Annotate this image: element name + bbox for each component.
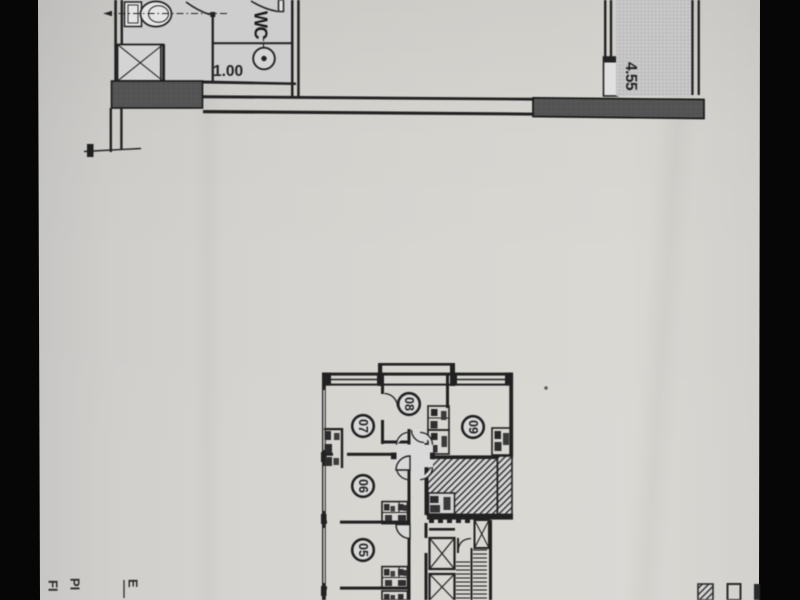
svg-text:E: E (126, 579, 141, 588)
svg-text:08: 08 (402, 397, 416, 411)
svg-text:09: 09 (466, 420, 480, 434)
svg-text:06: 06 (356, 479, 370, 493)
svg-text:PI: PI (68, 578, 83, 590)
svg-text:WC: WC (251, 11, 271, 39)
svg-text:05: 05 (356, 543, 370, 557)
svg-text:1.00: 1.00 (213, 63, 243, 80)
svg-text:FI: FI (46, 580, 61, 592)
svg-text:4.55: 4.55 (622, 62, 639, 91)
svg-text:07: 07 (356, 419, 370, 433)
